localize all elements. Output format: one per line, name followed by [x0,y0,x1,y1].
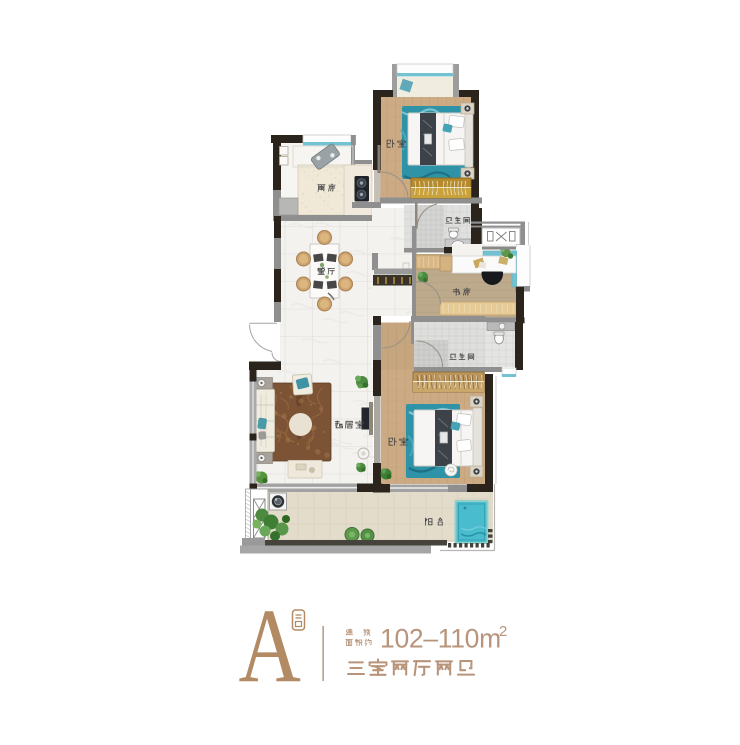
svg-text:102–110m: 102–110m [380,624,501,654]
svg-text:A: A [239,587,302,704]
svg-text:2: 2 [499,623,507,640]
